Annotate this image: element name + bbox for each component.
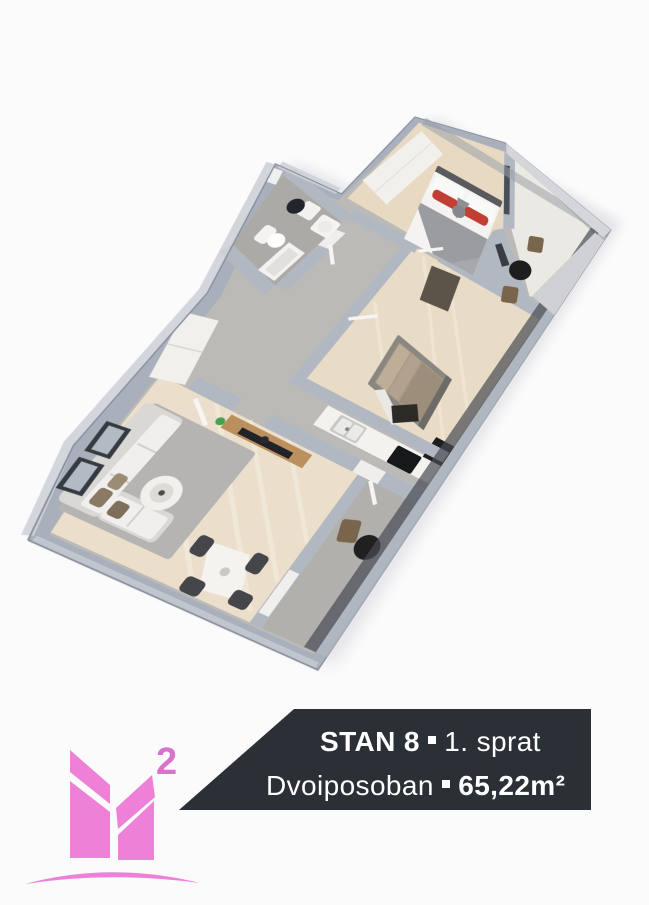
svg-text:2: 2	[156, 741, 177, 783]
